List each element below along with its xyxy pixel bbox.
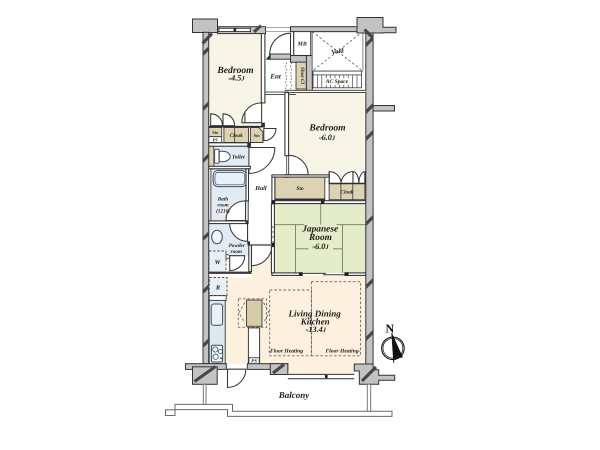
svg-text:MB: MB	[297, 42, 307, 48]
svg-text:Floor Heating-: Floor Heating-	[326, 348, 361, 354]
svg-text:-Floor Heating: -Floor Heating	[268, 348, 303, 354]
svg-text:(1216): (1216)	[216, 209, 230, 215]
svg-text:Cloak: Cloak	[230, 133, 243, 139]
svg-text:Sto: Sto	[212, 130, 219, 135]
svg-text:Hall: Hall	[254, 185, 267, 192]
svg-text:Shoe Cl: Shoe Cl	[299, 67, 305, 84]
svg-text:Cloak: Cloak	[340, 190, 353, 196]
svg-text:Balcony: Balcony	[278, 390, 311, 400]
svg-text:N: N	[385, 322, 394, 336]
svg-text:PS: PS	[251, 359, 257, 365]
svg-text:Sto: Sto	[296, 186, 303, 192]
svg-text:PS: PS	[213, 137, 219, 142]
svg-text:AC Space: AC Space	[325, 79, 349, 85]
svg-text:≈6.0J: ≈6.0J	[312, 242, 329, 251]
svg-text:R: R	[215, 285, 221, 292]
svg-text:Bedroom: Bedroom	[308, 122, 345, 133]
svg-text:Ent: Ent	[269, 73, 282, 81]
svg-text:Sto: Sto	[254, 133, 261, 138]
svg-text:Toilet: Toilet	[232, 155, 245, 161]
svg-text:room: room	[231, 249, 242, 255]
svg-text:≈13.4J: ≈13.4J	[306, 325, 327, 334]
svg-text:≈4.5J: ≈4.5J	[228, 74, 245, 83]
svg-text:≈6.0J: ≈6.0J	[319, 133, 336, 142]
